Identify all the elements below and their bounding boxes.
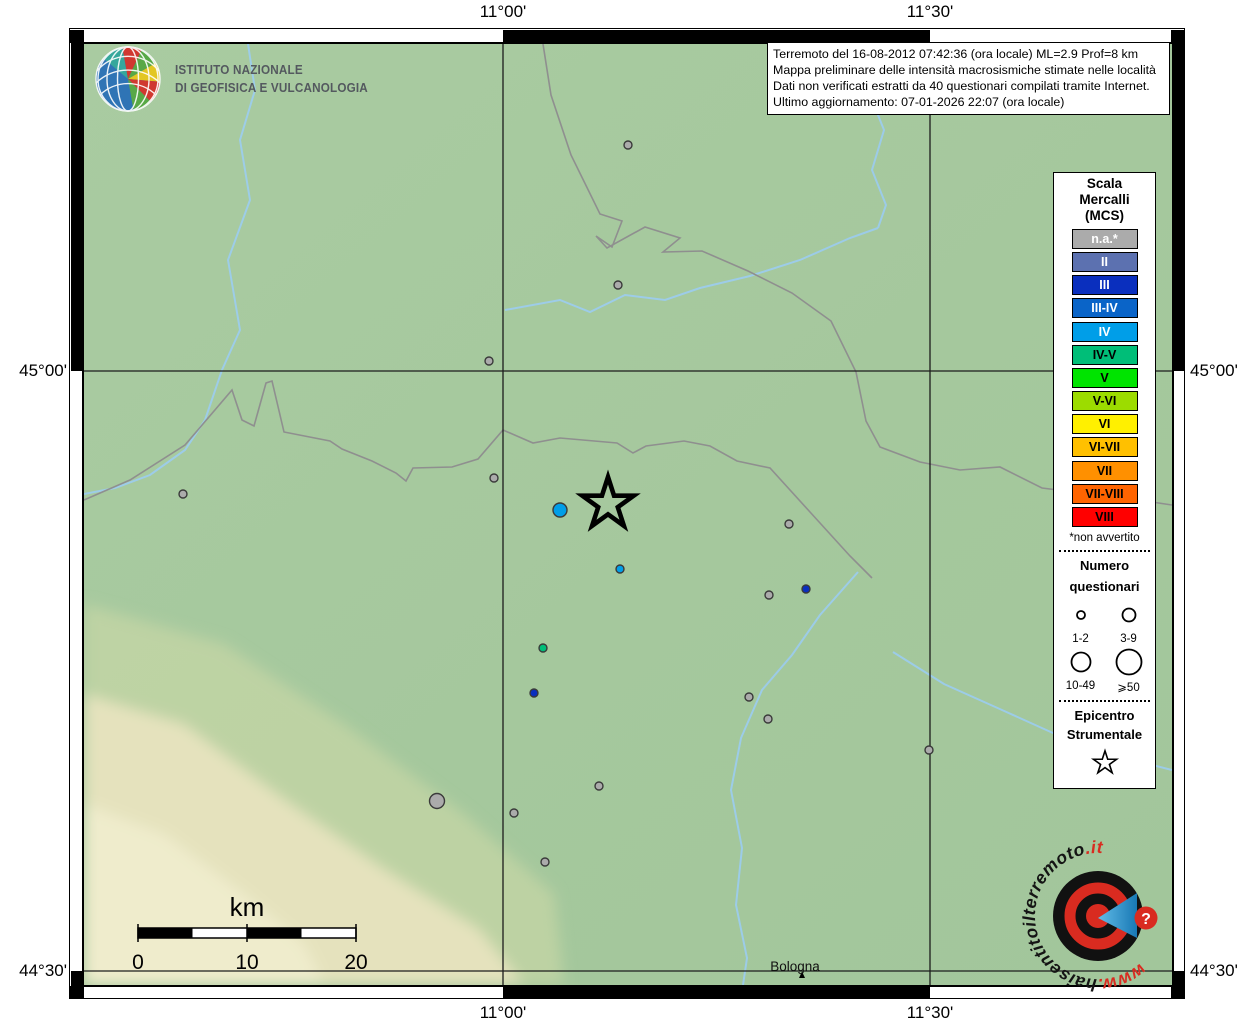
ingv-globe-icon — [95, 46, 161, 112]
mcs-chip-n.a.*: n.a.* — [1072, 229, 1138, 249]
frame-segment-bottom-middle — [503, 986, 930, 999]
questionnaire-title-line: Numero — [1054, 556, 1155, 577]
questionnaire-circle-icon — [1109, 598, 1149, 630]
intensity-point — [616, 565, 624, 573]
intensity-point — [595, 782, 603, 790]
questionnaire-title: Numero questionari — [1054, 556, 1155, 598]
info-box: Terremoto del 16-08-2012 07:42:36 (ora l… — [767, 42, 1170, 115]
legend-title-line: Mercalli — [1054, 192, 1155, 208]
legend-separator — [1059, 550, 1150, 552]
frame-segment-right-upper — [1173, 30, 1185, 371]
intensity-point — [530, 689, 538, 697]
question-badge: ? — [1135, 907, 1158, 930]
info-line-event: Terremoto del 16-08-2012 07:42:36 (ora l… — [773, 46, 1164, 62]
mcs-chip-iv-v: IV-V — [1072, 345, 1138, 365]
intensity-point — [541, 858, 549, 866]
intensity-point — [179, 490, 187, 498]
intensity-point — [430, 794, 445, 809]
info-line-updated: Ultimo aggiornamento: 07-01-2026 22:07 (… — [773, 94, 1164, 110]
info-line-map-desc: Mappa preliminare delle intensità macros… — [773, 62, 1164, 78]
svg-text:Bologna: Bologna — [770, 959, 820, 974]
mcs-chip-vi-vii: VI-VII — [1072, 437, 1138, 457]
mcs-chip-vii: VII — [1072, 461, 1138, 481]
legend-separator — [1059, 700, 1150, 702]
intensity-point — [539, 644, 547, 652]
intensity-point — [510, 809, 518, 817]
mcs-chip-viii: VIII — [1072, 507, 1138, 527]
questionnaire-circle-icon — [1061, 598, 1101, 630]
questionnaire-circle-icon — [1109, 645, 1149, 677]
legend-footnote: *non avvertito — [1054, 532, 1155, 544]
intensity-point — [553, 503, 567, 517]
watermark-logo: ? www.haisentitoilterremoto.it — [1020, 840, 1180, 995]
svg-text:?: ? — [1141, 911, 1151, 928]
mcs-chip-vi: VI — [1072, 414, 1138, 434]
legend-title-line: Scala — [1054, 176, 1155, 192]
legend-title: Scala Mercalli (MCS) — [1054, 176, 1155, 224]
mcs-chip-iii-iv: III-IV — [1072, 298, 1138, 318]
questionnaire-size-label: 3-9 — [1105, 633, 1153, 645]
mcs-chip-iv: IV — [1072, 322, 1138, 342]
epicenter-star-icon — [1088, 747, 1122, 777]
questionnaire-size-label: 1-2 — [1057, 633, 1105, 645]
intensity-point — [925, 746, 933, 754]
ingv-name-line1: ISTITUTO NAZIONALE — [175, 61, 368, 79]
scale-bar-title: km — [230, 892, 265, 922]
axis-label-lat-north-right: 45°00' — [1190, 361, 1256, 381]
axis-label-lat-south-right: 44°30' — [1190, 961, 1256, 981]
intensity-point — [802, 585, 810, 593]
info-line-data-source: Dati non verificati estratti da 40 quest… — [773, 78, 1164, 94]
scale-tick-20: 20 — [344, 951, 367, 974]
intensity-point — [765, 591, 773, 599]
questionnaire-title-line: questionari — [1054, 577, 1155, 598]
ingv-name-line2: DI GEOFISICA E VULCANOLOGIA — [175, 79, 368, 97]
intensity-point — [785, 520, 793, 528]
epicenter-title-line: Strumentale — [1054, 725, 1155, 745]
axis-label-lat-north-left: 45°00' — [0, 361, 67, 381]
scale-tick-10: 10 — [235, 951, 258, 974]
mcs-chip-vii-viii: VII-VIII — [1072, 484, 1138, 504]
mcs-scale-chips: n.a.*IIIIIIII-IVIVIV-VVV-VIVIVI-VIIVIIVI… — [1054, 229, 1155, 527]
questionnaire-size: 10-49 — [1057, 645, 1105, 694]
questionnaire-size: 1-2 — [1057, 598, 1105, 645]
axis-label-lon-west-bottom: 11°00' — [458, 1003, 548, 1023]
intensity-point — [745, 693, 753, 701]
axis-label-lon-east-top: 11°30' — [885, 2, 975, 22]
axis-label-lon-west-top: 11°00' — [458, 2, 548, 22]
axis-label-lat-south-left: 44°30' — [0, 961, 67, 981]
scale-tick-0: 0 — [132, 951, 144, 974]
epicenter-legend-title: Epicentro Strumentale — [1054, 706, 1155, 745]
axis-label-lon-east-bottom: 11°30' — [885, 1003, 975, 1023]
intensity-point — [490, 474, 498, 482]
legend-panel: Scala Mercalli (MCS) n.a.*IIIIIIII-IVIVI… — [1053, 172, 1156, 789]
questionnaire-size: 3-9 — [1105, 598, 1153, 645]
frame-segment-left-lower — [71, 971, 83, 998]
legend-title-line: (MCS) — [1054, 208, 1155, 224]
epicenter-title-line: Epicentro — [1054, 706, 1155, 726]
questionnaire-sizes: 1-23-910-49⩾50 — [1057, 598, 1153, 694]
intensity-point — [485, 357, 493, 365]
questionnaire-size-label: ⩾50 — [1105, 680, 1153, 694]
mcs-chip-v-vi: V-VI — [1072, 391, 1138, 411]
mcs-chip-ii: II — [1072, 252, 1138, 272]
intensity-point — [614, 281, 622, 289]
questionnaire-circle-icon — [1061, 645, 1101, 677]
frame-segment-left-upper — [71, 30, 83, 371]
questionnaire-size: ⩾50 — [1105, 645, 1153, 694]
mcs-chip-iii: III — [1072, 275, 1138, 295]
intensity-point — [764, 715, 772, 723]
map-canvas: km 0 10 20 Bologna — [84, 44, 1172, 985]
intensity-point — [624, 141, 632, 149]
ingv-logo: ISTITUTO NAZIONALE DI GEOFISICA E VULCAN… — [95, 46, 389, 112]
mcs-chip-v: V — [1072, 368, 1138, 388]
questionnaire-size-label: 10-49 — [1057, 680, 1105, 692]
